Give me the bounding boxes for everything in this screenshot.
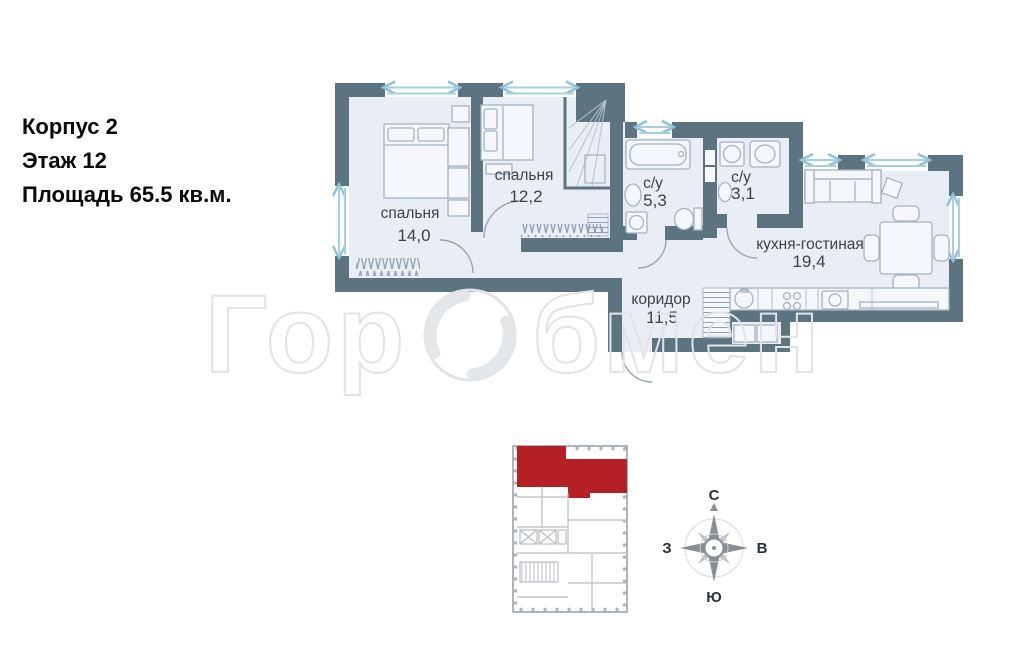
floor-plan: спальня 14,0 спальня 12,2 с/у 5,3 с/у 3,… [0, 0, 1024, 654]
wardrobe [703, 288, 730, 338]
toilet [694, 208, 702, 230]
stairs [520, 562, 558, 582]
chair [934, 235, 949, 261]
chair [864, 235, 879, 261]
compass-north: С [709, 487, 720, 504]
room-area-bathroom-1: 5,3 [643, 191, 667, 210]
room-label-bedroom-1: спальня [381, 205, 440, 222]
radiator [356, 258, 420, 276]
room-area-bathroom-2: 3,1 [731, 184, 755, 203]
sink [625, 184, 641, 206]
floorplan-listing-image: Корпус 2 Этаж 12 Площадь 65.5 кв.м. [0, 0, 1024, 654]
apartment-info: Корпус 2 Этаж 12 Площадь 65.5 кв.м. [22, 110, 232, 212]
building-label: Корпус 2 [22, 110, 232, 144]
room-area-bedroom-2: 12,2 [509, 187, 542, 206]
radiator [521, 224, 603, 237]
sofa [805, 179, 881, 202]
compass-east: В [757, 540, 768, 557]
room-label-corridor: коридор [631, 291, 690, 308]
dining-table [880, 222, 932, 274]
north-arrow [710, 503, 718, 511]
cabinet [757, 325, 777, 342]
room-label-bedroom-2: спальня [495, 167, 554, 184]
room-area-kitchen-living: 19,4 [792, 252, 825, 271]
room-label-bathroom-1: с/у [643, 175, 663, 192]
room-area-corridor: 11,5 [646, 308, 678, 327]
compass-west: З [662, 540, 671, 557]
room-label-kitchen-living: кухня-гостиная [756, 236, 864, 253]
floor-label: Этаж 12 [22, 144, 232, 178]
area-label: Площадь 65.5 кв.м. [22, 178, 232, 212]
room-area-bedroom-1: 14,0 [397, 226, 430, 245]
chair [893, 206, 919, 221]
building-key-plan [513, 446, 627, 612]
compass-south: Ю [706, 589, 721, 606]
compass-rose: С В Ю З [662, 487, 767, 606]
small-sink [719, 183, 732, 202]
cabinet [734, 325, 755, 342]
